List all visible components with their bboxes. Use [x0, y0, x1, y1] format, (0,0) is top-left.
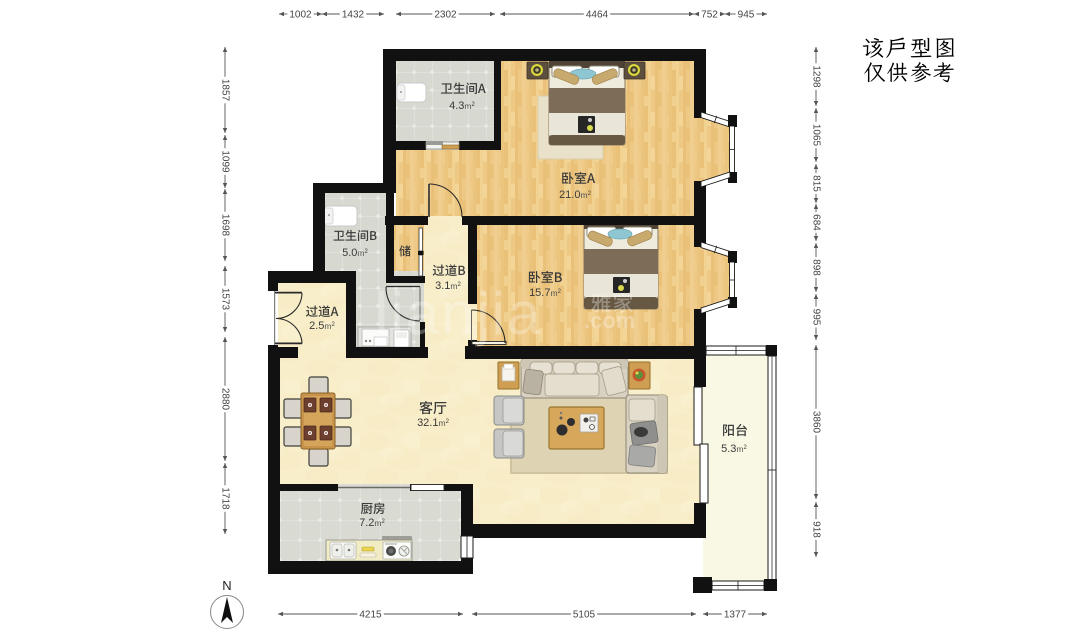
svg-text:1573: 1573	[220, 288, 231, 311]
svg-text:815: 815	[811, 175, 822, 192]
svg-text:1698: 1698	[220, 214, 231, 237]
svg-text:684: 684	[811, 214, 822, 231]
svg-text:1432: 1432	[342, 10, 365, 21]
svg-text:995: 995	[811, 309, 822, 326]
svg-text:N: N	[222, 578, 231, 593]
svg-text:945: 945	[738, 10, 755, 21]
svg-text:898: 898	[811, 259, 822, 276]
svg-text:lianjia: lianjia	[375, 280, 542, 347]
svg-text:4215: 4215	[359, 610, 382, 621]
svg-text:1298: 1298	[811, 65, 822, 88]
svg-text:5105: 5105	[573, 610, 596, 621]
svg-text:2302: 2302	[434, 10, 457, 21]
svg-text:15.7m2: 15.7m2	[529, 287, 562, 299]
svg-text:4464: 4464	[586, 10, 609, 21]
svg-text:1377: 1377	[724, 610, 747, 621]
svg-text:752: 752	[701, 10, 718, 21]
svg-text:918: 918	[811, 521, 822, 538]
svg-text:21.0m2: 21.0m2	[559, 189, 592, 201]
svg-text:32.1m2: 32.1m2	[417, 417, 450, 429]
svg-text:2880: 2880	[220, 388, 231, 411]
svg-text:.com: .com	[584, 308, 635, 333]
svg-text:1857: 1857	[220, 79, 231, 102]
svg-text:1002: 1002	[289, 10, 312, 21]
svg-text:1065: 1065	[811, 124, 822, 147]
svg-text:1099: 1099	[220, 150, 231, 173]
svg-text:1718: 1718	[220, 487, 231, 510]
svg-text:3860: 3860	[811, 411, 822, 434]
